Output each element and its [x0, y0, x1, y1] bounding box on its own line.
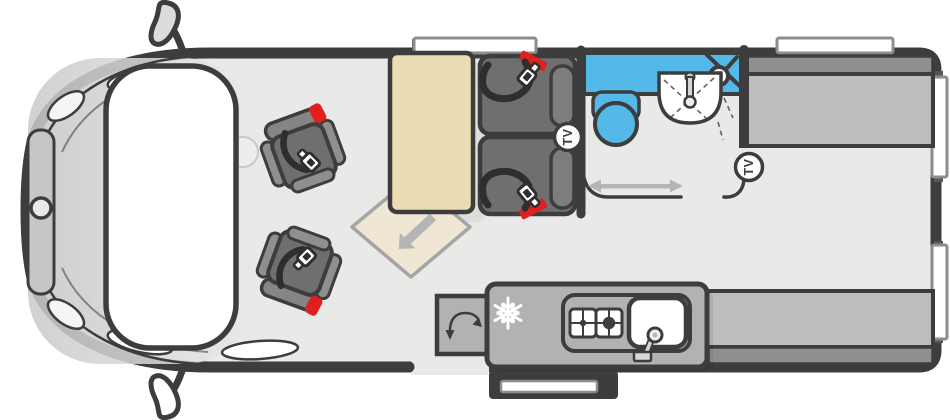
rear-bench-top: [741, 74, 933, 146]
two-burner-hob: [570, 309, 622, 337]
badge-icon: [31, 198, 51, 218]
toilet-bowl: [595, 103, 637, 145]
wall-end-cap: [404, 362, 415, 373]
burner-small: [580, 320, 586, 326]
sink-tap-center: [653, 333, 658, 338]
tap-foot: [634, 352, 651, 361]
campervan-floorplan: TV TV: [0, 0, 950, 420]
rear-shelf-bottom: [708, 347, 933, 364]
window-rear-top: [776, 38, 893, 53]
tv-label-front: TV: [561, 128, 575, 145]
rear-shelf-top: [741, 56, 933, 74]
entry-doorway-opening: [411, 360, 489, 375]
kitchen: [437, 284, 707, 367]
wing-mirror-top: [151, 2, 184, 55]
tap-base: [685, 97, 696, 108]
seat-bolster: [551, 66, 574, 126]
door-window: [501, 381, 597, 392]
seat-bolster: [551, 148, 574, 208]
travel-seat-upper: [480, 50, 575, 134]
tv-point-front: TV: [555, 124, 582, 151]
wing-mirror-bottom: [151, 365, 184, 418]
window-rear-top-glass: [777, 38, 893, 53]
tv-label-rear: TV: [742, 158, 756, 175]
sliding-habitation-door: [489, 371, 618, 399]
table: [390, 53, 473, 212]
burner-large: [603, 317, 615, 329]
rear-bench-bottom: [706, 291, 933, 347]
windshield: [106, 66, 236, 348]
floorplan-canvas: TV TV: [0, 0, 950, 420]
